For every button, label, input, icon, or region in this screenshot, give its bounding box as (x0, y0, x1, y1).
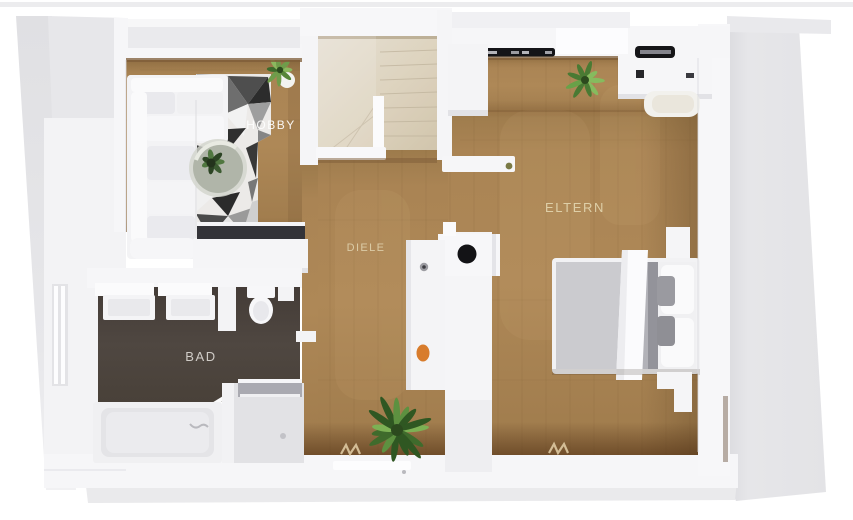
svg-text:HOBBY: HOBBY (246, 118, 296, 132)
svg-text:BAD: BAD (185, 349, 217, 364)
svg-text:DIELE: DIELE (347, 242, 386, 254)
svg-text:ELTERN: ELTERN (545, 200, 605, 215)
